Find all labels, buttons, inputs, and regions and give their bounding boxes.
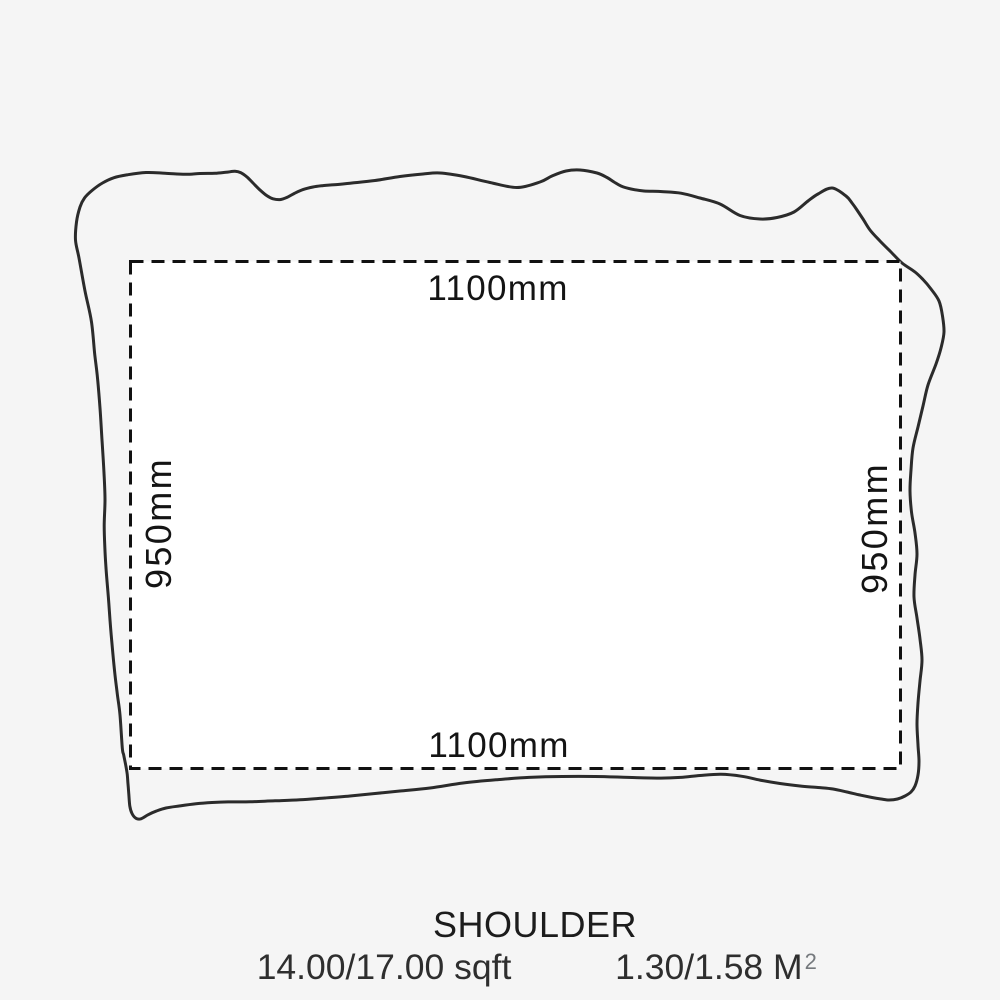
- svg-text:14.00/17.00 sqft: 14.00/17.00 sqft: [257, 947, 512, 987]
- svg-text:1100mm: 1100mm: [428, 726, 569, 765]
- svg-text:1.30/1.58 M2: 1.30/1.58 M2: [615, 947, 817, 987]
- svg-text:SHOULDER: SHOULDER: [433, 904, 637, 945]
- svg-text:950mm: 950mm: [854, 462, 895, 594]
- svg-text:1100mm: 1100mm: [427, 269, 568, 308]
- svg-text:950mm: 950mm: [138, 457, 179, 589]
